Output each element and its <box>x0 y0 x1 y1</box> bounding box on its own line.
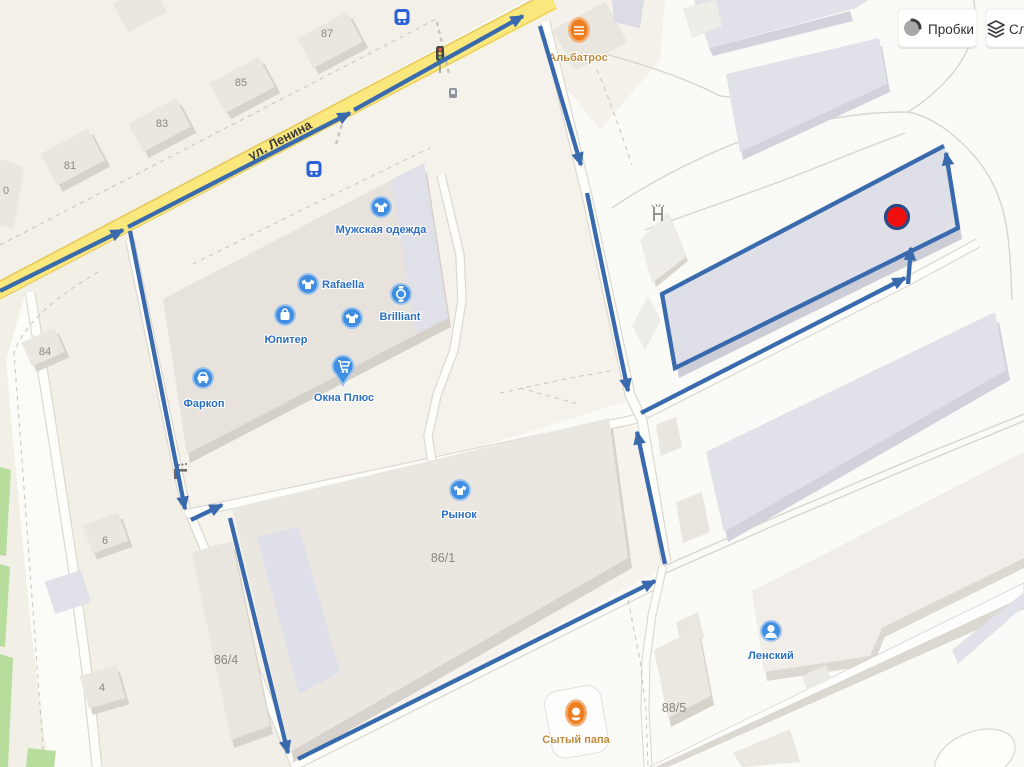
svg-text:Сл: Сл <box>1009 22 1024 37</box>
svg-text:Мужская одежда: Мужская одежда <box>336 224 428 236</box>
svg-text:86/1: 86/1 <box>431 551 455 565</box>
svg-text:87: 87 <box>321 28 333 40</box>
svg-text:Brilliant: Brilliant <box>380 311 421 323</box>
svg-text:86/4: 86/4 <box>214 653 238 667</box>
svg-text:Рынок: Рынок <box>441 509 477 521</box>
svg-text:83: 83 <box>156 118 168 130</box>
svg-text:Окна Плюс: Окна Плюс <box>314 392 374 404</box>
svg-text:Альбатрос: Альбатрос <box>548 52 607 64</box>
svg-text:Ленский: Ленский <box>748 650 794 662</box>
svg-text:Пробки: Пробки <box>928 22 974 37</box>
svg-text:84: 84 <box>39 346 51 358</box>
svg-text:6: 6 <box>102 535 108 547</box>
svg-text:88/5: 88/5 <box>662 701 686 715</box>
svg-text:0: 0 <box>3 185 9 197</box>
svg-text:4: 4 <box>99 682 105 694</box>
svg-text:Сытый папа: Сытый папа <box>542 734 610 746</box>
svg-text:Фаркоп: Фаркоп <box>184 398 225 410</box>
svg-text:Юпитер: Юпитер <box>265 334 308 346</box>
svg-text:85: 85 <box>235 77 247 89</box>
svg-text:81: 81 <box>64 160 76 172</box>
svg-text:Rafaella: Rafaella <box>322 279 365 291</box>
